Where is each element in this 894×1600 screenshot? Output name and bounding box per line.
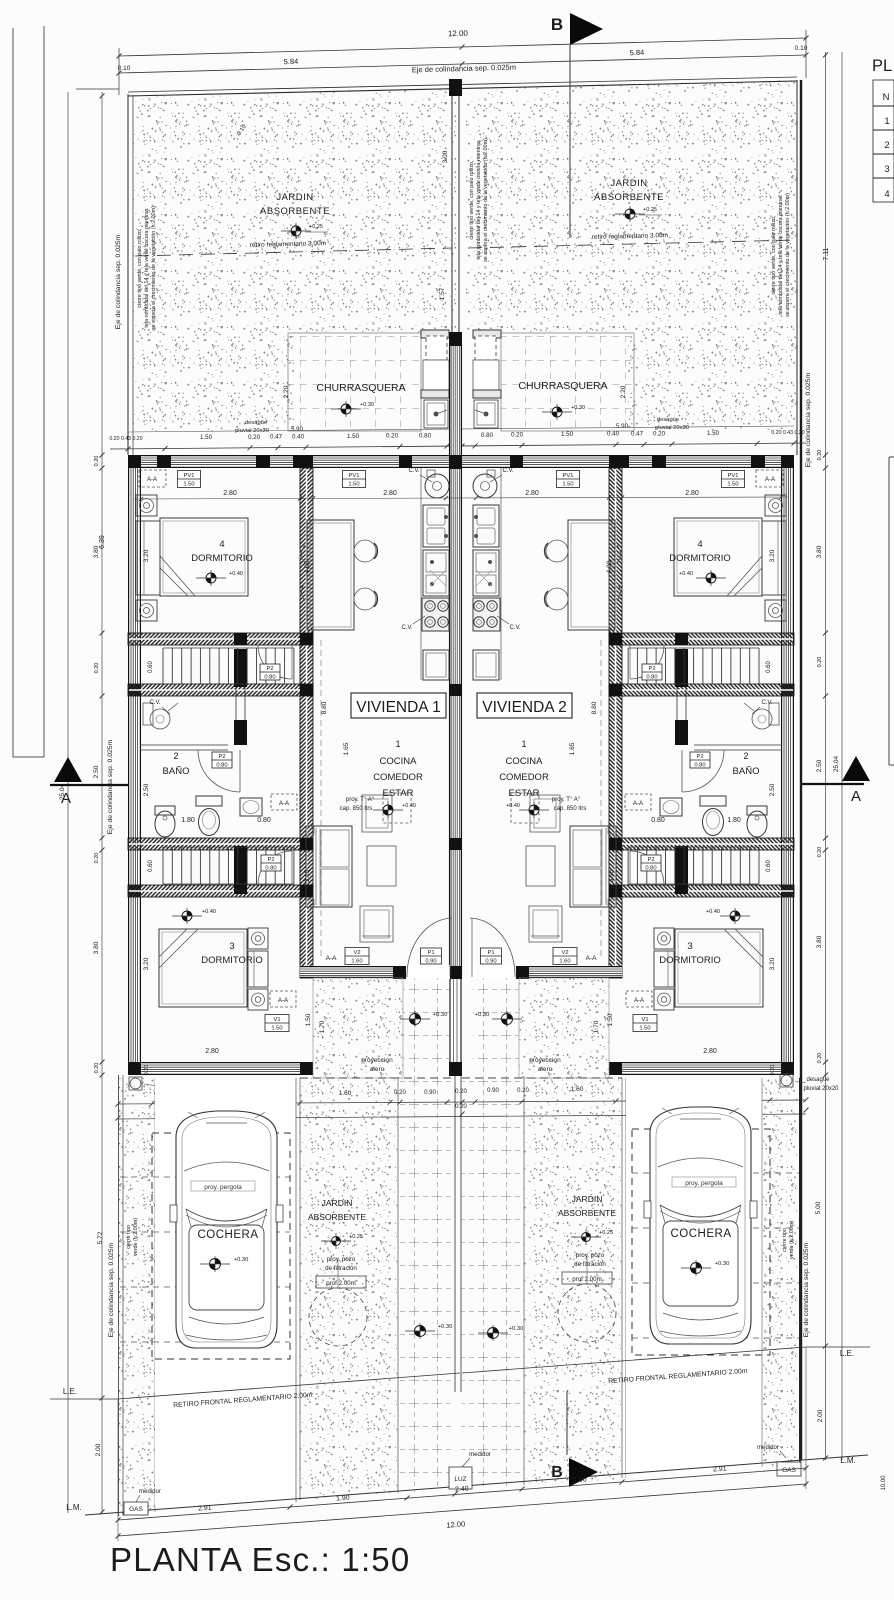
svg-text:C.V.: C.V. bbox=[502, 468, 513, 474]
svg-text:proy. pergola: proy. pergola bbox=[204, 1184, 242, 1191]
svg-text:A-A: A-A bbox=[633, 801, 643, 807]
svg-text:L.E.: L.E. bbox=[63, 1387, 77, 1396]
svg-text:A-A: A-A bbox=[326, 955, 338, 962]
svg-text:3.15: 3.15 bbox=[608, 869, 615, 882]
svg-text:1.50: 1.50 bbox=[561, 431, 574, 438]
svg-text:12.00: 12.00 bbox=[448, 29, 469, 39]
svg-text:0.80: 0.80 bbox=[481, 432, 494, 439]
svg-text:+0.40: +0.40 bbox=[402, 803, 416, 809]
svg-text:Eje de colindancia sep. 0.025m: Eje de colindancia sep. 0.025m bbox=[805, 372, 812, 467]
svg-text:0.20: 0.20 bbox=[653, 430, 666, 437]
svg-text:Eje de colindancia sep. 0.025m: Eje de colindancia sep. 0.025m bbox=[108, 1242, 115, 1337]
svg-text:verde (h:2.00m): verde (h:2.00m) bbox=[133, 1218, 139, 1256]
svg-text:A-A: A-A bbox=[279, 801, 289, 807]
svg-text:3.80: 3.80 bbox=[93, 941, 100, 954]
svg-text:+0.40: +0.40 bbox=[506, 803, 520, 809]
svg-text:de filtración: de filtración bbox=[574, 1261, 606, 1268]
svg-text:medidor: medidor bbox=[469, 1452, 491, 1458]
svg-text:desague: desague bbox=[245, 420, 267, 426]
svg-text:DORMITORIO: DORMITORIO bbox=[669, 553, 731, 564]
svg-text:cap. 850 ltrs: cap. 850 ltrs bbox=[340, 806, 373, 812]
svg-text:3: 3 bbox=[884, 164, 889, 175]
svg-text:0.40: 0.40 bbox=[292, 433, 305, 440]
svg-text:6.39: 6.39 bbox=[99, 535, 106, 549]
svg-text:0.80: 0.80 bbox=[645, 866, 656, 872]
svg-text:0.60: 0.60 bbox=[766, 860, 772, 872]
svg-text:2.20: 2.20 bbox=[620, 385, 627, 398]
svg-text:P1: P1 bbox=[487, 950, 494, 956]
svg-text:BAÑO: BAÑO bbox=[733, 766, 760, 777]
svg-text:2.50: 2.50 bbox=[816, 759, 823, 772]
svg-text:0.20: 0.20 bbox=[770, 1065, 776, 1076]
svg-text:2.20: 2.20 bbox=[283, 385, 290, 398]
svg-text:1.90: 1.90 bbox=[573, 1476, 587, 1484]
svg-text:0.20: 0.20 bbox=[144, 1065, 150, 1076]
svg-text:+0.30: +0.30 bbox=[438, 1324, 453, 1330]
svg-text:1.60: 1.60 bbox=[559, 959, 570, 965]
svg-text:2.00: 2.00 bbox=[95, 1443, 102, 1456]
svg-text:verde (h:2.00m): verde (h:2.00m) bbox=[789, 1221, 795, 1259]
svg-text:PV1: PV1 bbox=[349, 473, 360, 479]
svg-text:0.20: 0.20 bbox=[386, 433, 399, 440]
svg-text:cierre tipo: cierre tipo bbox=[126, 1225, 132, 1249]
svg-text:tela romboidal del 14 y tela v: tela romboidal del 14 y tela verde oscur… bbox=[476, 140, 482, 260]
svg-text:1.50: 1.50 bbox=[347, 433, 360, 440]
svg-text:CHURRASQUERA: CHURRASQUERA bbox=[518, 380, 607, 392]
svg-text:1.50: 1.50 bbox=[200, 434, 213, 441]
svg-text:5.00: 5.00 bbox=[815, 1201, 822, 1214]
svg-text:Eje de colindancia sep. 0.025m: Eje de colindancia sep. 0.025m bbox=[803, 1242, 810, 1337]
svg-text:7.11: 7.11 bbox=[823, 247, 830, 260]
svg-text:+0.40: +0.40 bbox=[706, 909, 720, 915]
svg-text:P1: P1 bbox=[427, 950, 434, 956]
svg-text:L.M.: L.M. bbox=[66, 1503, 82, 1512]
svg-text:ABSORBENTE: ABSORBENTE bbox=[594, 192, 664, 203]
svg-text:COCINA: COCINA bbox=[506, 756, 544, 767]
svg-text:B: B bbox=[551, 15, 563, 34]
svg-text:1.65: 1.65 bbox=[343, 742, 350, 755]
svg-text:GAS: GAS bbox=[129, 1506, 143, 1513]
svg-text:0.80: 0.80 bbox=[646, 675, 657, 681]
svg-text:1.50: 1.50 bbox=[639, 1026, 650, 1032]
svg-text:0.10: 0.10 bbox=[118, 65, 131, 72]
svg-text:0.80: 0.80 bbox=[694, 763, 705, 769]
svg-text:ESTAR: ESTAR bbox=[383, 788, 414, 799]
svg-text:2.80: 2.80 bbox=[685, 490, 699, 497]
svg-text:proyeccion: proyeccion bbox=[361, 1057, 393, 1064]
svg-text:5.72: 5.72 bbox=[97, 1231, 104, 1244]
svg-text:proy. T° A°: proy. T° A° bbox=[552, 797, 581, 803]
svg-text:COMEDOR: COMEDOR bbox=[373, 772, 423, 783]
svg-text:3.20: 3.20 bbox=[769, 549, 776, 562]
svg-text:DORMITORIO: DORMITORIO bbox=[191, 553, 253, 564]
svg-text:3.80: 3.80 bbox=[816, 545, 823, 558]
svg-text:0.90: 0.90 bbox=[425, 959, 436, 965]
svg-text:0.20: 0.20 bbox=[817, 847, 823, 858]
svg-text:2: 2 bbox=[743, 751, 748, 761]
svg-text:2.50: 2.50 bbox=[769, 783, 776, 796]
svg-text:0.20: 0.20 bbox=[94, 1063, 100, 1074]
svg-text:3.20: 3.20 bbox=[143, 957, 150, 970]
svg-text:1.50: 1.50 bbox=[562, 482, 573, 488]
svg-text:P2: P2 bbox=[696, 754, 703, 760]
svg-text:VIVIENDA 2: VIVIENDA 2 bbox=[482, 699, 566, 716]
svg-text:10.00: 10.00 bbox=[881, 1475, 887, 1491]
svg-text:3.20: 3.20 bbox=[143, 549, 150, 562]
svg-text:0.20: 0.20 bbox=[817, 450, 823, 461]
svg-text:pluvial 20x20: pluvial 20x20 bbox=[803, 1086, 839, 1092]
svg-text:2.80: 2.80 bbox=[525, 490, 539, 497]
svg-text:0.60: 0.60 bbox=[766, 661, 772, 673]
svg-text:0.20: 0.20 bbox=[94, 456, 100, 467]
svg-text:+0.40: +0.40 bbox=[679, 571, 693, 577]
svg-text:VIVIENDA 1: VIVIENDA 1 bbox=[356, 699, 440, 716]
svg-text:3.00: 3.00 bbox=[442, 150, 449, 163]
svg-text:cierre tipo verde, con palo ro: cierre tipo verde, con palo rollizo, bbox=[469, 160, 475, 240]
svg-text:0.80: 0.80 bbox=[419, 432, 432, 439]
svg-text:A-A: A-A bbox=[147, 477, 157, 483]
svg-text:ESTAR: ESTAR bbox=[509, 788, 540, 799]
svg-text:4: 4 bbox=[697, 539, 702, 550]
svg-text:A: A bbox=[61, 790, 71, 807]
svg-text:ABSORBENTE: ABSORBENTE bbox=[260, 206, 330, 217]
svg-text:+0.40: +0.40 bbox=[229, 571, 243, 577]
svg-text:3.80: 3.80 bbox=[816, 935, 823, 948]
svg-text:8.80: 8.80 bbox=[321, 701, 328, 714]
svg-text:proy. T° A°: proy. T° A° bbox=[346, 797, 375, 803]
svg-text:2.80: 2.80 bbox=[205, 1048, 219, 1055]
svg-text:3: 3 bbox=[229, 941, 234, 952]
svg-text:prof 2.00m: prof 2.00m bbox=[326, 1280, 356, 1287]
svg-text:2.80: 2.80 bbox=[703, 1048, 717, 1055]
svg-text:12.00: 12.00 bbox=[446, 1519, 465, 1529]
svg-text:1: 1 bbox=[884, 116, 889, 127]
svg-text:1.57: 1.57 bbox=[439, 287, 446, 300]
svg-text:4: 4 bbox=[219, 539, 224, 550]
svg-text:pluvial 20x20: pluvial 20x20 bbox=[655, 425, 689, 431]
svg-text:0.20: 0.20 bbox=[511, 432, 524, 439]
svg-text:2.80: 2.80 bbox=[223, 490, 237, 497]
svg-text:P2: P2 bbox=[267, 857, 274, 863]
svg-text:2: 2 bbox=[884, 140, 889, 151]
svg-text:0.47: 0.47 bbox=[270, 434, 283, 441]
svg-text:4.00: 4.00 bbox=[304, 560, 311, 573]
svg-text:proy. pergola: proy. pergola bbox=[685, 1180, 723, 1187]
svg-text:+0.25: +0.25 bbox=[643, 207, 657, 213]
svg-text:COCINA: COCINA bbox=[380, 756, 418, 767]
svg-text:0.20 0.43 0.20: 0.20 0.43 0.20 bbox=[771, 430, 804, 436]
svg-text:0.20: 0.20 bbox=[94, 663, 100, 674]
svg-text:2.91: 2.91 bbox=[198, 1504, 212, 1512]
svg-text:Eje de colindancia sep. 0.025m: Eje de colindancia sep. 0.025m bbox=[107, 739, 114, 834]
svg-text:+0.30: +0.30 bbox=[360, 402, 374, 408]
svg-text:0.80: 0.80 bbox=[265, 866, 276, 872]
svg-text:+0.25: +0.25 bbox=[309, 224, 323, 230]
svg-text:P2: P2 bbox=[647, 857, 654, 863]
svg-text:cap. 850 ltrs: cap. 850 ltrs bbox=[554, 806, 587, 812]
svg-text:P2: P2 bbox=[266, 666, 273, 672]
svg-text:+0.30: +0.30 bbox=[433, 1012, 448, 1018]
svg-text:1.80: 1.80 bbox=[727, 817, 741, 824]
svg-text:C.V.: C.V. bbox=[509, 625, 520, 631]
svg-text:de filtración: de filtración bbox=[325, 1265, 357, 1272]
svg-text:COCHERA: COCHERA bbox=[670, 1228, 731, 1240]
svg-text:2: 2 bbox=[173, 751, 178, 761]
svg-text:PV1: PV1 bbox=[563, 473, 574, 479]
svg-text:C.V.: C.V. bbox=[401, 625, 412, 631]
svg-text:+0.40: +0.40 bbox=[202, 909, 216, 915]
svg-text:2.50: 2.50 bbox=[93, 765, 100, 778]
svg-text:5.90: 5.90 bbox=[616, 423, 629, 430]
svg-text:V2: V2 bbox=[561, 950, 568, 956]
svg-text:1.65: 1.65 bbox=[569, 742, 576, 755]
svg-text:5.84: 5.84 bbox=[630, 48, 645, 57]
svg-text:2.00: 2.00 bbox=[817, 1409, 824, 1422]
svg-text:+0.25: +0.25 bbox=[349, 1234, 363, 1240]
svg-text:cierre tipo verde, con palo ro: cierre tipo verde, con palo rollizo, bbox=[771, 215, 777, 295]
svg-text:A-A: A-A bbox=[634, 998, 644, 1004]
svg-text:8.80: 8.80 bbox=[591, 701, 598, 714]
svg-text:5.90: 5.90 bbox=[291, 426, 304, 433]
svg-text:se espera el crecimiento de la: se espera el crecimiento de la vegetació… bbox=[151, 206, 157, 330]
svg-text:se espera el crecimiento de la: se espera el crecimiento de la vegetació… bbox=[785, 193, 791, 317]
svg-text:B: B bbox=[551, 1464, 563, 1481]
svg-text:COCHERA: COCHERA bbox=[197, 1229, 258, 1241]
svg-text:2.80: 2.80 bbox=[383, 490, 397, 497]
svg-text:JARDIN: JARDIN bbox=[276, 192, 313, 203]
svg-text:0.40: 0.40 bbox=[607, 431, 620, 438]
svg-text:0.80: 0.80 bbox=[651, 817, 665, 824]
svg-text:L.E.: L.E. bbox=[840, 1349, 854, 1358]
svg-text:PL: PL bbox=[872, 57, 892, 75]
svg-text:1.50: 1.50 bbox=[707, 430, 720, 437]
svg-text:2.91: 2.91 bbox=[713, 1465, 727, 1473]
svg-text:1: 1 bbox=[521, 739, 526, 749]
svg-text:proyeccion: proyeccion bbox=[529, 1057, 561, 1064]
svg-text:L.M.: L.M. bbox=[840, 1456, 856, 1465]
svg-text:1.90: 1.90 bbox=[336, 1494, 350, 1502]
svg-text:JARDIN: JARDIN bbox=[322, 1198, 353, 1208]
svg-text:COMEDOR: COMEDOR bbox=[499, 772, 549, 783]
svg-text:0.20: 0.20 bbox=[94, 853, 100, 864]
svg-text:Eje de colindancia sep. 0.025m: Eje de colindancia sep. 0.025m bbox=[115, 234, 122, 329]
svg-text:2.50: 2.50 bbox=[143, 783, 150, 796]
svg-text:+0.30: +0.30 bbox=[234, 1257, 249, 1263]
svg-text:3.15: 3.15 bbox=[304, 869, 311, 882]
svg-text:5.84: 5.84 bbox=[284, 57, 299, 66]
svg-text:DORMITORIO: DORMITORIO bbox=[659, 955, 721, 966]
svg-text:alero: alero bbox=[538, 1066, 553, 1073]
svg-text:P2: P2 bbox=[648, 666, 655, 672]
svg-text:+0.30: +0.30 bbox=[715, 1261, 730, 1267]
svg-text:se espera el crecimiento de la: se espera el crecimiento de la vegetació… bbox=[483, 138, 489, 262]
svg-text:1.50: 1.50 bbox=[183, 482, 194, 488]
svg-text:alero: alero bbox=[370, 1066, 385, 1073]
svg-text:1.80: 1.80 bbox=[181, 817, 195, 824]
svg-text:A-A: A-A bbox=[765, 477, 775, 483]
svg-text:JARDIN: JARDIN bbox=[572, 1194, 603, 1204]
svg-text:desague: desague bbox=[806, 1077, 830, 1083]
svg-text:+0.30: +0.30 bbox=[509, 1326, 524, 1332]
svg-text:PV1: PV1 bbox=[184, 473, 195, 479]
svg-text:JARDIN: JARDIN bbox=[610, 178, 647, 189]
svg-text:tela romboidal del 14 y tela v: tela romboidal del 14 y tela verde oscur… bbox=[144, 208, 150, 328]
svg-text:A-A: A-A bbox=[586, 955, 598, 962]
svg-text:C.V.: C.V. bbox=[149, 700, 160, 706]
svg-text:DORMITORIO: DORMITORIO bbox=[201, 955, 263, 966]
svg-text:+0.25: +0.25 bbox=[599, 1230, 613, 1236]
svg-text:0.60: 0.60 bbox=[148, 661, 154, 673]
svg-text:0.80: 0.80 bbox=[257, 817, 271, 824]
svg-text:1.60: 1.60 bbox=[351, 959, 362, 965]
svg-text:ABSORBENTE: ABSORBENTE bbox=[558, 1208, 616, 1218]
svg-text:proy. pozo: proy. pozo bbox=[327, 1256, 356, 1263]
svg-text:C.V.: C.V. bbox=[761, 700, 772, 706]
svg-text:N: N bbox=[883, 92, 890, 103]
svg-text:1.50: 1.50 bbox=[348, 482, 359, 488]
svg-text:3: 3 bbox=[687, 941, 692, 952]
svg-text:0.80: 0.80 bbox=[264, 675, 275, 681]
svg-text:tela romboidal del 14 y tela v: tela romboidal del 14 y tela verde oscur… bbox=[778, 195, 784, 315]
svg-text:0.90: 0.90 bbox=[485, 959, 496, 965]
svg-text:4: 4 bbox=[884, 189, 889, 200]
svg-text:4.00: 4.00 bbox=[606, 560, 613, 573]
svg-text:medidor: medidor bbox=[139, 1489, 161, 1495]
svg-text:desague: desague bbox=[657, 417, 679, 423]
svg-text:1: 1 bbox=[395, 739, 400, 749]
svg-text:ABSORBENTE: ABSORBENTE bbox=[308, 1212, 366, 1222]
svg-text:A: A bbox=[851, 788, 861, 805]
svg-text:A-A: A-A bbox=[278, 998, 288, 1004]
svg-text:LUZ: LUZ bbox=[454, 1476, 466, 1483]
svg-text:0.20: 0.20 bbox=[817, 657, 823, 668]
svg-text:medidor: medidor bbox=[757, 1445, 779, 1451]
svg-text:BAÑO: BAÑO bbox=[163, 766, 190, 777]
svg-text:V1: V1 bbox=[273, 1017, 280, 1023]
svg-text:C.V.: C.V. bbox=[408, 468, 419, 474]
svg-text:V1: V1 bbox=[641, 1017, 648, 1023]
svg-text:PV1: PV1 bbox=[728, 473, 739, 479]
svg-text:proy. pozo: proy. pozo bbox=[576, 1252, 605, 1259]
svg-text:0.20: 0.20 bbox=[248, 434, 261, 441]
svg-text:CHURRASQUERA: CHURRASQUERA bbox=[316, 382, 405, 394]
svg-text:1.50: 1.50 bbox=[305, 1013, 312, 1026]
svg-text:0.20 0.43 0.20: 0.20 0.43 0.20 bbox=[109, 436, 142, 442]
svg-text:0.60: 0.60 bbox=[148, 860, 154, 872]
svg-text:0.80: 0.80 bbox=[216, 763, 227, 769]
svg-text:3.20: 3.20 bbox=[769, 957, 776, 970]
svg-text:1.50: 1.50 bbox=[727, 482, 738, 488]
svg-text:1.50: 1.50 bbox=[271, 1026, 282, 1032]
svg-text:25.04: 25.04 bbox=[833, 755, 840, 772]
svg-text:V2: V2 bbox=[353, 950, 360, 956]
svg-text:2.40: 2.40 bbox=[455, 1485, 469, 1493]
svg-text:P2: P2 bbox=[218, 754, 225, 760]
svg-text:cierre tipo verde, con palo ro: cierre tipo verde, con palo rollizo, bbox=[137, 228, 143, 308]
svg-text:+0.30: +0.30 bbox=[475, 1012, 490, 1018]
svg-text:GAS: GAS bbox=[782, 1467, 796, 1474]
svg-text:0.47: 0.47 bbox=[631, 431, 644, 438]
svg-text:PLANTA Esc.: 1:50: PLANTA Esc.: 1:50 bbox=[110, 1541, 410, 1578]
svg-text:+0.30: +0.30 bbox=[571, 405, 585, 411]
svg-text:cierre tipo: cierre tipo bbox=[782, 1228, 788, 1252]
svg-text:0.20: 0.20 bbox=[817, 1053, 823, 1064]
